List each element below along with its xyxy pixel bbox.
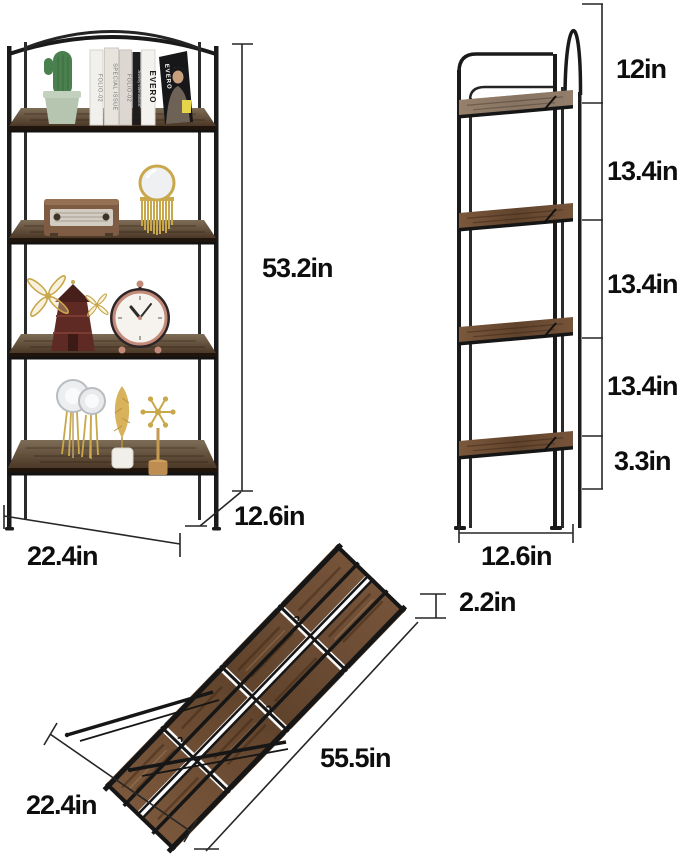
front-view-photo: FOLIO-02 SPECIAL ISSUE FOLIO-02 Jewelry … [5, 32, 221, 531]
front-depth-dimension-line [185, 492, 241, 526]
book-spine-text-1: FOLIO-02 [97, 74, 103, 102]
front-width-label: 22.4in [27, 543, 98, 570]
folded-thickness-label: 2.2in [459, 589, 516, 616]
folded-leg-cap-1 [65, 733, 69, 737]
front-right-foot [212, 527, 221, 531]
side-gap-label-1: 12in [616, 56, 666, 83]
magazine: EVERO [159, 51, 193, 124]
side-rear-post-inner [561, 87, 564, 528]
front-depth-label: 12.6in [234, 503, 305, 530]
cactus-plant [43, 51, 81, 124]
front-arch-inner [25, 32, 198, 49]
side-gap-label-2: 13.4in [607, 158, 678, 185]
side-front-foot [454, 526, 466, 530]
book-spine-text-5: EVERO [148, 70, 157, 103]
side-rear-foot [550, 526, 562, 530]
folded-view-photo [65, 543, 408, 854]
front-height-dimension-line [232, 44, 253, 491]
gold-sunburst-mirror [140, 166, 174, 235]
side-gap-label-4: 13.4in [607, 373, 678, 400]
front-height-label: 53.2in [262, 255, 333, 282]
side-height-dimension-lines [582, 4, 603, 489]
folded-thickness-dimension [415, 594, 446, 618]
side-handle-loop [565, 31, 581, 100]
book-spine-text-3: FOLIO-02 [126, 74, 132, 102]
book-row: FOLIO-02 SPECIAL ISSUE FOLIO-02 Jewelry … [90, 48, 157, 125]
diagram-scene: FOLIO-02 SPECIAL ISSUE FOLIO-02 Jewelry … [0, 0, 679, 863]
front-right-post [214, 46, 219, 528]
front-left-foot [5, 527, 14, 531]
side-top-bar-outer [459, 54, 553, 72]
book-spine-text-2: SPECIAL ISSUE [112, 63, 118, 111]
gold-feather-decor [112, 386, 133, 468]
folded-slab [102, 543, 407, 854]
side-handle-post [578, 92, 582, 528]
side-depth-label: 12.6in [481, 543, 552, 570]
folded-width-label: 22.4in [26, 792, 97, 819]
front-shelf-3 [9, 334, 217, 360]
side-view-photo [454, 31, 582, 530]
book-spine-text-4: Jewelry International [137, 70, 142, 107]
side-rear-post [553, 54, 557, 528]
folded-length-label: 55.5in [320, 745, 391, 772]
side-gap-label-3: 13.4in [607, 271, 678, 298]
folded-leg-cap-2 [128, 768, 132, 772]
product-dimension-image: FOLIO-02 SPECIAL ISSUE FOLIO-02 Jewelry … [0, 0, 679, 863]
vintage-radio [44, 199, 119, 236]
side-front-post-inner [469, 98, 472, 528]
side-gap-label-5: 3.3in [614, 448, 671, 475]
front-left-post [7, 46, 12, 528]
